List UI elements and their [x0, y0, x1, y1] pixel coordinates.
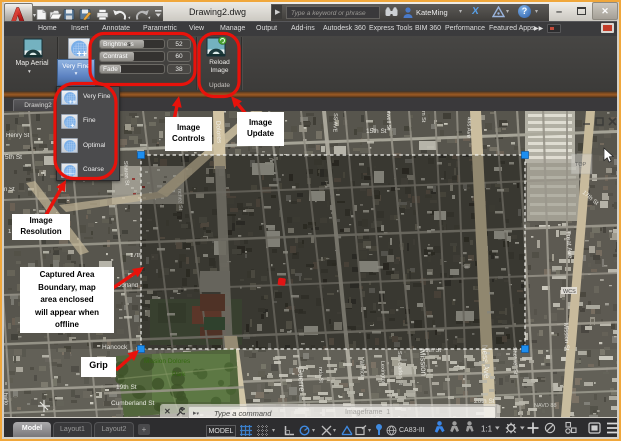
- svg-text:Park: Park: [172, 371, 186, 378]
- svg-text:++: ++: [77, 49, 87, 58]
- svg-text:TOP: TOP: [575, 162, 587, 168]
- svg-text:Mission Dolores: Mission Dolores: [144, 358, 191, 365]
- svg-text:Cumberland St: Cumberland St: [111, 400, 155, 407]
- svg-text:1:1: 1:1: [481, 425, 493, 434]
- svg-text:+: +: [70, 122, 74, 128]
- svg-text:19th St: 19th St: [116, 384, 137, 391]
- svg-text:++: ++: [68, 99, 76, 105]
